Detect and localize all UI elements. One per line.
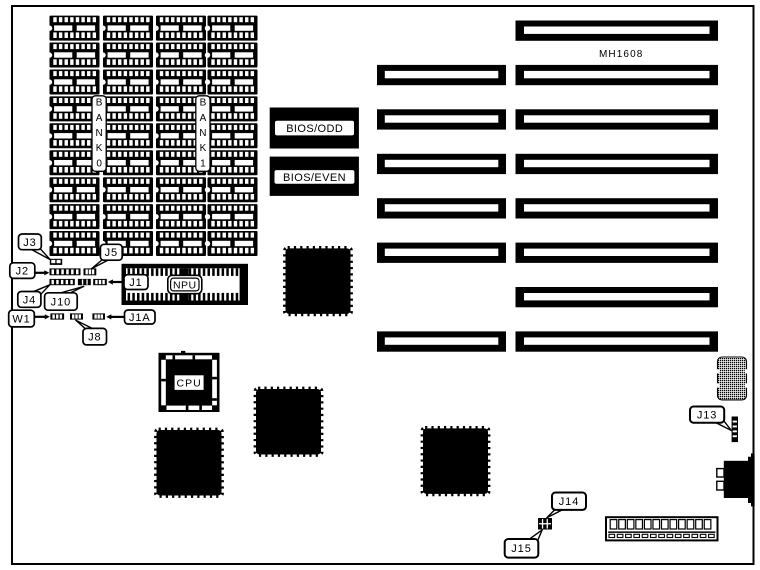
svg-text:W1: W1	[12, 313, 30, 325]
svg-text:CPU: CPU	[177, 377, 202, 389]
svg-text:J2: J2	[16, 266, 29, 278]
svg-text:B: B	[96, 98, 103, 109]
svg-text:N: N	[199, 128, 206, 139]
svg-text:BIOS/EVEN: BIOS/EVEN	[283, 172, 346, 184]
svg-text:J8: J8	[88, 332, 101, 344]
svg-text:MH1608: MH1608	[599, 49, 643, 60]
svg-text:J3: J3	[23, 237, 36, 249]
svg-text:J4: J4	[23, 294, 36, 306]
svg-text:A: A	[96, 113, 103, 124]
svg-text:J1: J1	[129, 277, 142, 289]
svg-text:NPU: NPU	[173, 280, 197, 292]
svg-text:K: K	[200, 143, 207, 154]
svg-text:J10: J10	[51, 296, 71, 308]
svg-text:J15: J15	[511, 543, 531, 555]
svg-text:J14: J14	[559, 496, 579, 508]
svg-text:BIOS/ODD: BIOS/ODD	[286, 123, 343, 135]
svg-text:J13: J13	[697, 410, 717, 422]
svg-text:A: A	[200, 113, 207, 124]
svg-text:0: 0	[96, 158, 102, 169]
svg-text:B: B	[200, 98, 207, 109]
svg-text:J1A: J1A	[129, 312, 151, 324]
svg-text:K: K	[96, 143, 103, 154]
svg-text:J5: J5	[105, 247, 118, 259]
svg-text:1: 1	[200, 158, 206, 169]
svg-text:N: N	[95, 128, 102, 139]
